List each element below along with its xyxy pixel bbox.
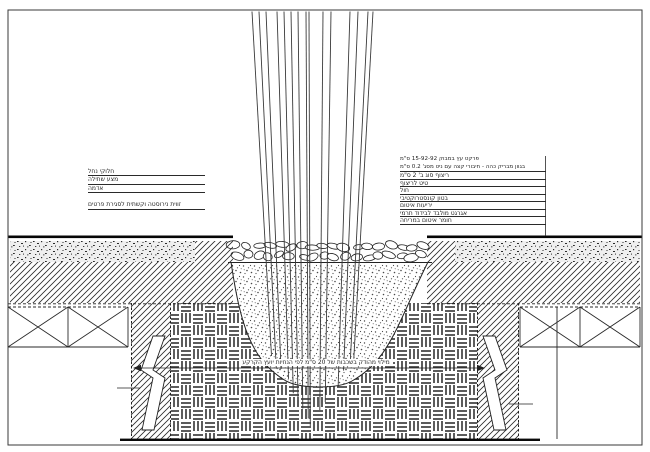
label-bamboo-deck-line1: פרקט עץ במבוק 15-92-92 ס"מ (400, 155, 546, 163)
river-pebbles-layer (226, 238, 432, 263)
label-waterproofing-sheets: יריעות איטום (400, 202, 546, 209)
label-river-pebbles: חלוקי נחל (88, 168, 205, 175)
left-label-stack: חלוקי נחל מצע שתילה אדמה זווית נירוסטה ו… (88, 168, 205, 210)
label-stainless-angle: זווית נירוסטה וקשתית לסגירת פרטים (88, 201, 205, 208)
excavation-bottom-line (120, 439, 540, 441)
label-soil: אדמה (88, 185, 205, 192)
label-bamboo-deck-line2: בגוון מבריק כהה - חיבורי קצה עם ניט מסג'… (400, 163, 546, 171)
left-label-row: אדמה (88, 185, 205, 193)
left-label-row: חלוקי נחל (88, 168, 205, 176)
right-label-row: טיט לריצוף (400, 180, 546, 188)
paving-buildup-right (427, 236, 642, 304)
right-label-row: חול (400, 187, 546, 195)
joist-truss-right (520, 307, 640, 347)
tree-planting-detail-drawing: חלוקי נחל מצע שתילה אדמה זווית נירוסטה ו… (0, 0, 650, 452)
detail-linework (0, 0, 650, 452)
label-mortar: טיט לריצוף (400, 180, 546, 187)
left-label-row: מצע שתילה (88, 176, 205, 184)
label-paving: ריצוף סוג ב' 2 ס"מ (400, 172, 546, 179)
joist-truss-left (8, 307, 128, 347)
label-applied-waterproofing: חומר איטום במריחה (400, 217, 546, 224)
right-label-title-row: פרקט עץ במבוק 15-92-92 ס"מ בגוון מבריק כ… (400, 155, 546, 172)
label-thermal-insulation: אגרגט מולבד לבידוד תרמי (400, 210, 546, 217)
right-label-row: חומר איטום במריחה (400, 217, 546, 225)
deck-surface-line-left (8, 236, 233, 239)
label-structural-concrete: בטון קונסטרוקטיבי (400, 195, 546, 202)
left-label-row: זווית נירוסטה וקשתית לסגירת פרטים (88, 201, 205, 209)
right-label-row: יריעות איטום (400, 202, 546, 210)
right-label-stack: פרקט עץ במבוק 15-92-92 ס"מ בגוון מבריק כ… (400, 155, 546, 225)
paving-buildup-left (8, 236, 233, 304)
right-label-row: בטון קונסטרוקטיבי (400, 195, 546, 203)
label-sand: חול (400, 187, 546, 194)
label-planting-medium: מצע שתילה (88, 176, 205, 183)
deck-surface-line-right (427, 236, 642, 239)
right-label-row: אגרגט מולבד לבידוד תרמי (400, 210, 546, 218)
right-label-row: ריצוף סוג ב' 2 ס"מ (400, 172, 546, 180)
